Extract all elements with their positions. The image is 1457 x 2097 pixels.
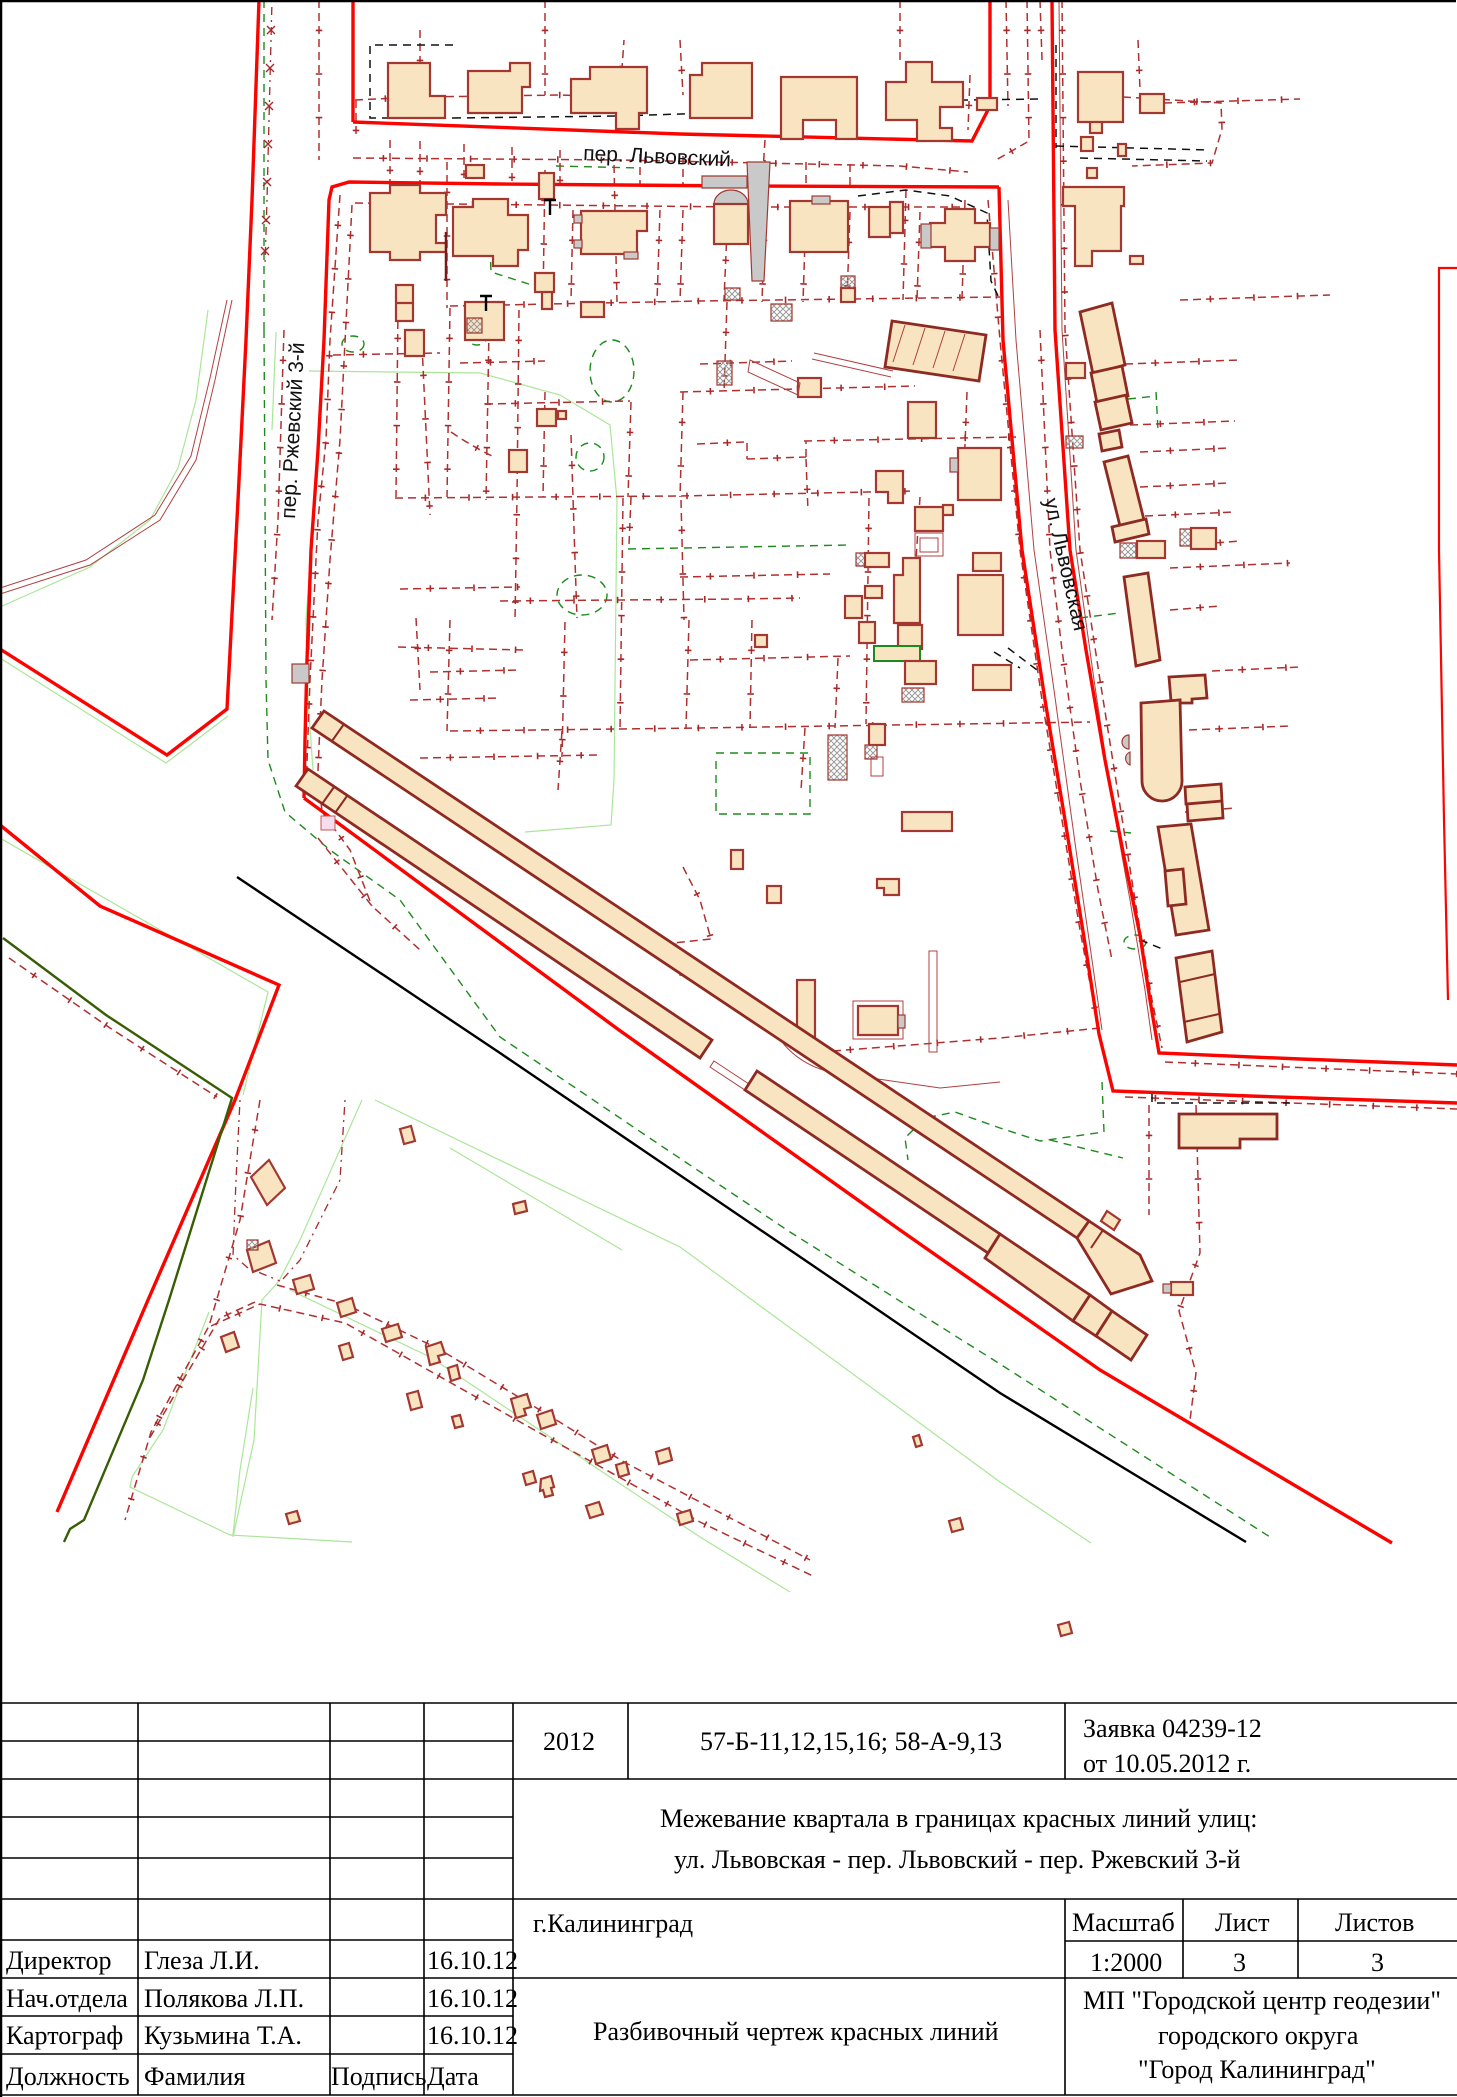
svg-text:Разбивочный чертеж красных лин: Разбивочный чертеж красных линий (593, 2017, 999, 2046)
svg-text:Лист: Лист (1215, 1908, 1269, 1937)
svg-text:городского округа: городского округа (1158, 2021, 1359, 2050)
svg-text:Картограф: Картограф (6, 2021, 123, 2050)
svg-text:Листов: Листов (1335, 1908, 1414, 1937)
svg-text:Дата: Дата (427, 2062, 479, 2091)
svg-text:"Город Калининград": "Город Калининград" (1138, 2055, 1376, 2084)
svg-text:3: 3 (1371, 1948, 1384, 1977)
svg-text:Должность: Должность (6, 2062, 130, 2091)
svg-text:Межевание квартала в границах: Межевание квартала в границах красных ли… (660, 1804, 1257, 1833)
svg-text:16.10.12: 16.10.12 (427, 2021, 518, 2050)
svg-text:16.10.12: 16.10.12 (427, 1946, 518, 1975)
svg-text:Полякова Л.П.: Полякова Л.П. (144, 1984, 304, 2013)
svg-text:16.10.12: 16.10.12 (427, 1984, 518, 2013)
svg-text:Нач.отдела: Нач.отдела (6, 1984, 128, 2013)
svg-text:2012: 2012 (543, 1727, 595, 1756)
svg-text:ул. Львовская - пер. Львовский: ул. Львовская - пер. Львовский - пер. Рж… (674, 1845, 1241, 1874)
svg-text:Директор: Директор (6, 1946, 112, 1975)
svg-text:1:2000: 1:2000 (1090, 1948, 1162, 1977)
svg-text:Подпись: Подпись (331, 2062, 427, 2091)
svg-text:57-Б-11,12,15,16; 58-А-9,13: 57-Б-11,12,15,16; 58-А-9,13 (700, 1727, 1002, 1756)
svg-text:Глеза Л.И.: Глеза Л.И. (144, 1946, 260, 1975)
svg-text:г.Калининград: г.Калининград (533, 1909, 693, 1938)
svg-text:МП "Городской центр геодезии": МП "Городской центр геодезии" (1083, 1986, 1441, 2015)
svg-text:3: 3 (1233, 1948, 1246, 1977)
svg-text:от 10.05.2012 г.: от 10.05.2012 г. (1083, 1749, 1251, 1778)
svg-text:Заявка 04239-12: Заявка 04239-12 (1083, 1714, 1262, 1743)
svg-text:Кузьмина Т.А.: Кузьмина Т.А. (144, 2021, 302, 2050)
svg-text:Фамилия: Фамилия (144, 2062, 245, 2091)
svg-text:Масштаб: Масштаб (1072, 1908, 1175, 1937)
